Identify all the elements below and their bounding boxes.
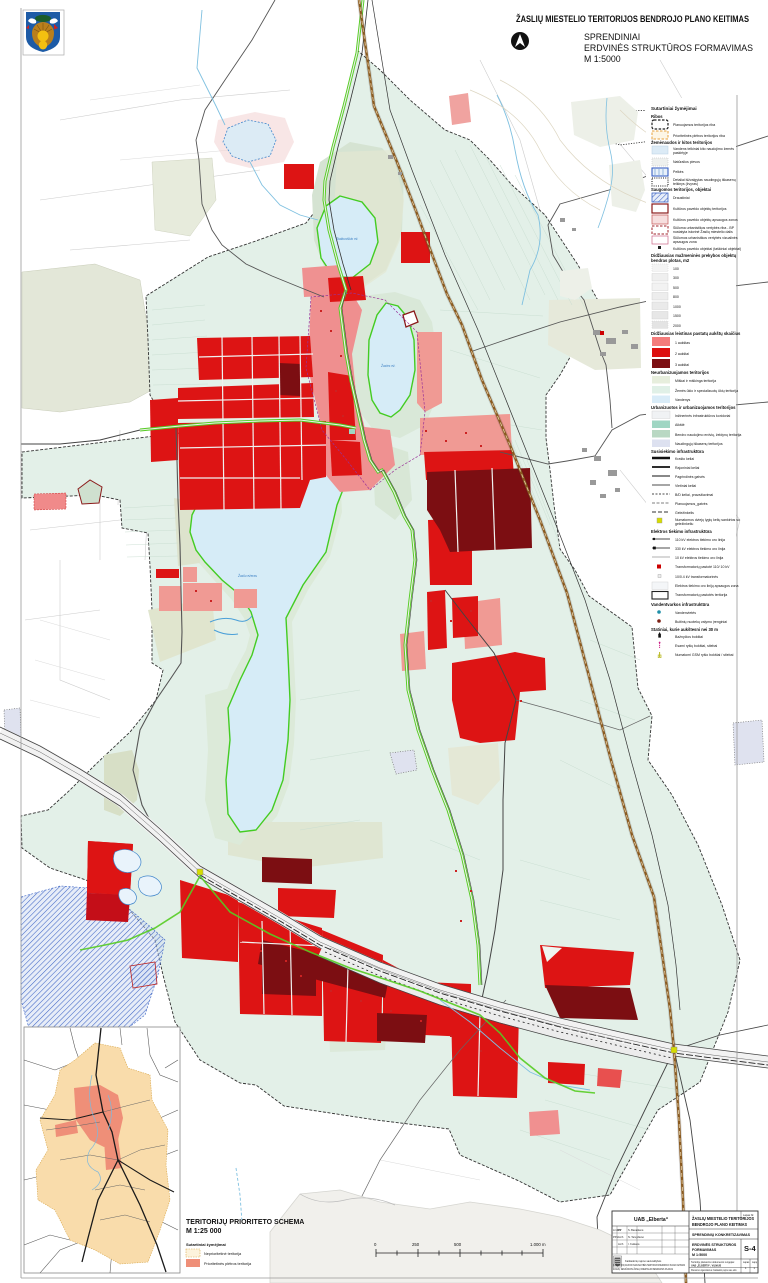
svg-text:Buitinių nuotekų valymo įrengi: Buitinių nuotekų valymo įrenginiai bbox=[675, 620, 727, 624]
svg-text:Kultūros paveldo objektų terit: Kultūros paveldo objektų teritorijos bbox=[673, 207, 727, 211]
svg-text:bendras plotas, m2: bendras plotas, m2 bbox=[651, 258, 690, 263]
svg-text:Transformatorių pastotės terit: Transformatorių pastotės teritorija bbox=[675, 593, 727, 597]
svg-text:Kultūros paveldo objektų apsau: Kultūros paveldo objektų apsaugos zonos bbox=[673, 218, 738, 222]
svg-text:Planavimo organizatorius: Kaiš: Planavimo organizatorius: Kaišiadorių ra… bbox=[691, 1269, 737, 1272]
svg-text:Miškai ir miškinga teritorija: Miškai ir miškinga teritorija bbox=[675, 379, 716, 383]
svg-text:800: 800 bbox=[673, 295, 679, 299]
svg-text:Draustiniai: Draustiniai bbox=[673, 196, 690, 200]
svg-text:Geležinkelis: Geležinkelis bbox=[675, 511, 694, 515]
svg-text:Žemės ūkio ir specializuotų ūk: Žemės ūkio ir specializuotų ūkių teritor… bbox=[675, 388, 738, 393]
svg-text:Vandenys: Vandenys bbox=[675, 398, 691, 402]
svg-text:Esami ryšių bokštai, stiebai: Esami ryšių bokštai, stiebai bbox=[675, 644, 717, 648]
svg-text:500: 500 bbox=[673, 286, 679, 290]
svg-text:BENDROJO PLANO KEITIMAS: BENDROJO PLANO KEITIMAS bbox=[692, 1222, 747, 1227]
svg-text:Elektros tiekimo oro linijų ap: Elektros tiekimo oro linijų apsaugos zon… bbox=[675, 584, 738, 588]
svg-text:Transformatorių pastotė 110/ 1: Transformatorių pastotė 110/ 10 kV bbox=[675, 565, 730, 569]
svg-text:1500: 1500 bbox=[673, 314, 681, 318]
svg-text:Naudingųjų iškasenų teritorijo: Naudingųjų iškasenų teritorijos bbox=[675, 442, 723, 446]
svg-text:1.000 m: 1.000 m bbox=[530, 1242, 546, 1247]
svg-text:Aikštė: Aikštė bbox=[675, 423, 685, 427]
svg-text:10/0.4 kV transformatorinės: 10/0.4 kV transformatorinės bbox=[675, 575, 718, 579]
svg-text:Lapas: Lapas bbox=[743, 1262, 750, 1264]
svg-text:Neurbanizuojamos teritorijos: Neurbanizuojamos teritorijos bbox=[651, 370, 710, 375]
svg-text:Bažnyčios bokštai: Bažnyčios bokštai bbox=[675, 635, 703, 639]
svg-text:Elektros tiekimo infrastruktūr: Elektros tiekimo infrastruktūra bbox=[651, 529, 712, 534]
svg-text:I. Kukienė: I. Kukienė bbox=[628, 1242, 640, 1246]
svg-text:M 1:5000: M 1:5000 bbox=[584, 54, 621, 64]
svg-text:Vandentvarkos infrastruktūra: Vandentvarkos infrastruktūra bbox=[651, 602, 710, 607]
svg-text:telkinys (žvyras): telkinys (žvyras) bbox=[673, 182, 698, 186]
svg-text:250: 250 bbox=[412, 1242, 420, 1247]
svg-text:Pelkės: Pelkės bbox=[673, 170, 684, 174]
svg-text:FORMAVIMAS: FORMAVIMAS bbox=[692, 1248, 717, 1252]
svg-text:Numatomi GSM ryšio bokštai / s: Numatomi GSM ryšio bokštai / stiebai bbox=[675, 653, 734, 657]
svg-text:100: 100 bbox=[673, 267, 679, 271]
svg-text:TERITORIJŲ PRIORITETO SCHEMA: TERITORIJŲ PRIORITETO SCHEMA bbox=[186, 1219, 304, 1226]
svg-text:110 kV elektros tiekimo oro l: 110 kV elektros tiekimo oro linija bbox=[675, 538, 725, 542]
svg-text:B/D keliai, pravažiavimai: B/D keliai, pravažiavimai bbox=[675, 493, 713, 497]
svg-text:ERDVINĖS STRUKTŪROS FORMAVIMAS: ERDVINĖS STRUKTŪROS FORMAVIMAS bbox=[584, 43, 753, 53]
svg-text:S. Banaitienė: S. Banaitienė bbox=[628, 1228, 644, 1232]
svg-text:Neprioritetinė teritorija: Neprioritetinė teritorija bbox=[204, 1252, 242, 1256]
svg-text:UAB „Elberta“: UAB „Elberta“ bbox=[634, 1217, 669, 1223]
svg-text:1000: 1000 bbox=[673, 305, 681, 309]
svg-text:Pagrindinės gatvės: Pagrindinės gatvės bbox=[675, 475, 705, 479]
svg-text:300: 300 bbox=[673, 276, 679, 280]
svg-text:Sutartiniai žymėjimai: Sutartiniai žymėjimai bbox=[186, 1242, 226, 1247]
svg-text:M 1:25 000: M 1:25 000 bbox=[186, 1228, 222, 1235]
svg-text:Kaišiadorių rajono savivaldybė: Kaišiadorių rajono savivaldybės bbox=[625, 1259, 662, 1263]
svg-text:Bendro naudojimo erdvių, želdy: Bendro naudojimo erdvių, želdynų teritor… bbox=[675, 433, 741, 437]
svg-text:Žemėnaudos ir kitos teritorijo: Žemėnaudos ir kitos teritorijos bbox=[651, 140, 713, 145]
svg-text:Planuojamos_gatvės: Planuojamos_gatvės bbox=[675, 502, 708, 506]
svg-text:ERDVINĖS STRUKTŪROS: ERDVINĖS STRUKTŪROS bbox=[692, 1243, 737, 1247]
svg-text:Natūralios pievos: Natūralios pievos bbox=[673, 160, 700, 164]
svg-text:N. Tarvydienė: N. Tarvydienė bbox=[628, 1235, 644, 1239]
svg-text:Lapas Nr.: Lapas Nr. bbox=[743, 1213, 754, 1217]
svg-text:UAB „ELBERTA“, VILNIUS: UAB „ELBERTA“, VILNIUS bbox=[691, 1265, 722, 1268]
svg-text:Urbanizuotos ir urbanizuojamos: Urbanizuotos ir urbanizuojamos teritorij… bbox=[651, 405, 736, 410]
svg-text:Ribos: Ribos bbox=[651, 114, 663, 119]
svg-text:Lapų: Lapų bbox=[752, 1262, 758, 1264]
svg-text:Krašto keliai: Krašto keliai bbox=[675, 457, 694, 461]
svg-text:nustatyta istorinė Žaslių mies: nustatyta istorinė Žaslių miestelio dali… bbox=[673, 229, 733, 234]
svg-text:Arch: Arch bbox=[618, 1235, 624, 1239]
svg-text:0: 0 bbox=[374, 1242, 377, 1247]
svg-text:Vandenvietės: Vandenvietės bbox=[675, 611, 696, 615]
svg-text:Statiniai, kurie aukštesni nei: Statiniai, kurie aukštesni nei 30 m bbox=[651, 627, 718, 632]
svg-text:Kultūros paveldo objektai (taš: Kultūros paveldo objektai (taškiniai obj… bbox=[673, 247, 741, 251]
svg-text:Sutartiniai žymėjimai: Sutartiniai žymėjimai bbox=[651, 106, 697, 111]
svg-text:Prioritetinės plėtros teritori: Prioritetinės plėtros teritorija bbox=[204, 1262, 252, 1266]
svg-text:Planuojamos teritorijos riba: Planuojamos teritorijos riba bbox=[673, 123, 715, 127]
svg-text:2 aukštai: 2 aukštai bbox=[675, 352, 689, 356]
svg-text:PV: PV bbox=[618, 1228, 622, 1232]
svg-text:Saugomos teritorijos, objektai: Saugomos teritorijos, objektai bbox=[651, 187, 711, 192]
svg-text:geležinkeliu: geležinkeliu bbox=[675, 522, 693, 526]
svg-text:Inžinerinės infrastruktūros ko: Inžinerinės infrastruktūros koridoriai bbox=[675, 414, 730, 418]
svg-text:KAIŠIADORIŲ RAJONO SAVIVALDYBĖ: KAIŠIADORIŲ RAJONO SAVIVALDYBĖS TERITORI… bbox=[613, 1264, 685, 1267]
svg-text:2000: 2000 bbox=[673, 324, 681, 328]
svg-text:330 kV elektros tiekimo oro l: 330 kV elektros tiekimo oro linija bbox=[675, 547, 725, 551]
svg-text:ŽASLIŲ MIESTELIO TERITORIJOS B: ŽASLIŲ MIESTELIO TERITORIJOS BENDROJO PL… bbox=[516, 13, 749, 25]
svg-text:Didžiausias leistinas pastatų: Didžiausias leistinas pastatų aukštų ska… bbox=[651, 331, 741, 336]
svg-text:Rajoniniai keliai: Rajoniniai keliai bbox=[675, 466, 700, 470]
svg-text:SPRENDINIAI: SPRENDINIAI bbox=[584, 32, 640, 42]
svg-text:3 aukštai: 3 aukštai bbox=[675, 363, 689, 367]
svg-text:Arch: Arch bbox=[618, 1242, 624, 1246]
svg-text:paskirtyje: paskirtyje bbox=[673, 151, 688, 155]
svg-text:500: 500 bbox=[454, 1242, 462, 1247]
svg-text:apsaugos zona: apsaugos zona bbox=[673, 240, 697, 244]
svg-text:Vietiniai keliai: Vietiniai keliai bbox=[675, 484, 696, 488]
svg-text:SPRENDINIŲ KONKRETIZAVIMAS: SPRENDINIŲ KONKRETIZAVIMAS bbox=[692, 1233, 750, 1237]
svg-text:Prioritetinės plėtros teritori: Prioritetinės plėtros teritorijos riba bbox=[673, 134, 725, 138]
svg-text:10 kV elektros tiekimo oro li: 10 kV elektros tiekimo oro linija bbox=[675, 556, 723, 560]
svg-text:1 aukštas: 1 aukštas bbox=[675, 341, 690, 345]
svg-text:ŽASLIŲ SENIŪNIJOS ŽASLIŲ MIEST: ŽASLIŲ SENIŪNIJOS ŽASLIŲ MIESTELIO BENDR… bbox=[613, 1268, 673, 1271]
svg-text:S-4: S-4 bbox=[744, 1244, 757, 1253]
svg-text:Susisiekimo infrastruktūra: Susisiekimo infrastruktūra bbox=[651, 449, 704, 454]
svg-text:M 1:5000: M 1:5000 bbox=[692, 1253, 707, 1257]
